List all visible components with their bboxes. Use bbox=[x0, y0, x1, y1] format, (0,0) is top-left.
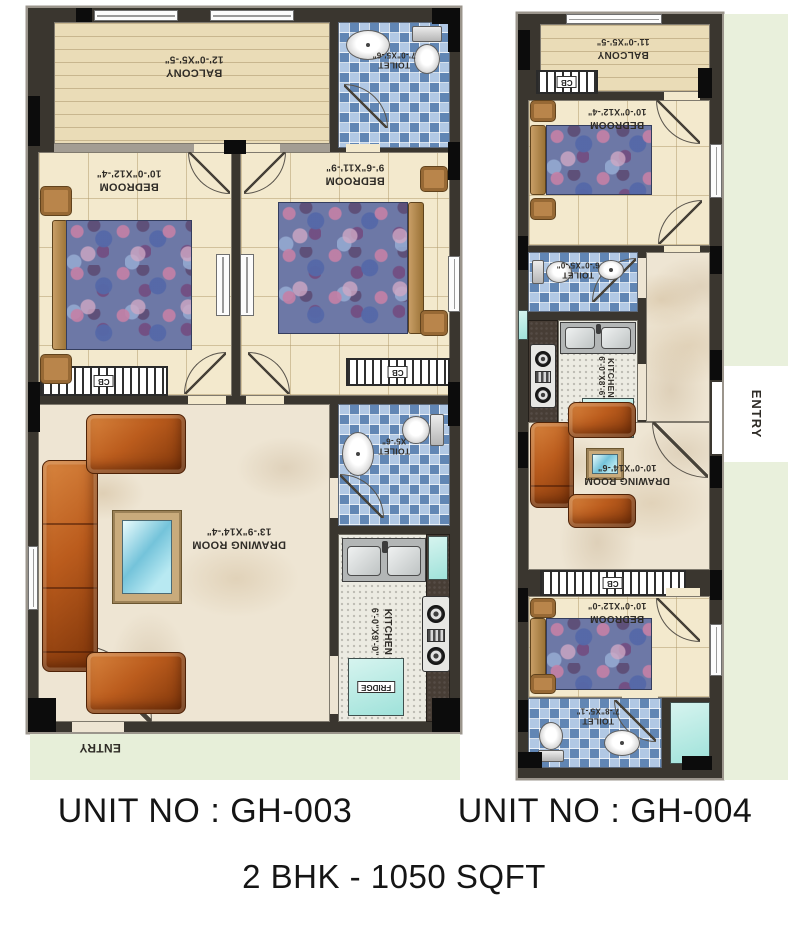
column-block bbox=[432, 698, 460, 732]
column-block bbox=[710, 570, 722, 600]
burner-icon bbox=[427, 647, 445, 665]
sofa-three-seater bbox=[42, 460, 98, 672]
room-dim: 7'-8"X5'-1" bbox=[576, 706, 619, 716]
room-dim: 7'-0"X5'-6" bbox=[372, 50, 415, 60]
sofa-single bbox=[86, 414, 186, 474]
room-dim: 11'-0"X5'-5" bbox=[597, 36, 650, 47]
column-block bbox=[518, 588, 528, 622]
column-block bbox=[224, 140, 246, 154]
door-opening bbox=[666, 588, 700, 596]
column-block bbox=[518, 700, 528, 732]
room-name: BALCONY bbox=[166, 65, 223, 79]
utility-glass-box bbox=[670, 702, 710, 764]
bed bbox=[546, 125, 652, 195]
window bbox=[518, 310, 528, 340]
sofa-single bbox=[86, 652, 186, 714]
sink-basin bbox=[565, 327, 595, 349]
bedside-table bbox=[40, 354, 72, 384]
room-name: BALCONY bbox=[597, 47, 649, 60]
room-name: KITCHEN bbox=[606, 358, 617, 398]
sofa-single bbox=[568, 402, 636, 438]
room-dim: 10'-0"X14'-6" bbox=[598, 462, 657, 473]
faucet-icon bbox=[596, 324, 601, 334]
cupboard: CB bbox=[540, 570, 686, 596]
cupboard-label: CB bbox=[94, 375, 114, 387]
burner-icon bbox=[427, 605, 445, 623]
column-block bbox=[28, 96, 40, 146]
sink-basin bbox=[347, 546, 381, 576]
room-dim: X5'-6" bbox=[382, 436, 406, 446]
burner-icon bbox=[535, 387, 551, 403]
door-panel bbox=[240, 254, 254, 316]
drawing-room-label: DRAWING ROOM 10'-0"X14'-6" bbox=[562, 462, 692, 486]
unit-number-gh003: UNIT NO : GH-003 bbox=[30, 792, 380, 831]
sink-icon bbox=[560, 322, 636, 354]
room-name: TOILET bbox=[378, 60, 410, 71]
gh004-corridor bbox=[646, 252, 710, 422]
bed bbox=[546, 618, 652, 690]
room-dim: 10'-0"X12'-0" bbox=[588, 600, 647, 611]
cupboard-label: CB bbox=[603, 577, 623, 589]
door-panel bbox=[216, 254, 230, 316]
door-opening bbox=[346, 144, 380, 152]
column-block bbox=[448, 382, 460, 426]
window bbox=[94, 10, 178, 21]
door-opening bbox=[244, 144, 280, 152]
room-name: BEDROOM bbox=[590, 611, 644, 624]
unit-number-gh004: UNIT NO : GH-004 bbox=[440, 792, 770, 831]
gh004-outside-entry-area: ENTRY bbox=[724, 14, 788, 780]
column-block bbox=[710, 456, 722, 488]
column-block bbox=[698, 68, 712, 98]
fridge-label: FRIDGE bbox=[357, 681, 395, 693]
door-opening bbox=[638, 258, 646, 298]
bedroom-label: BEDROOM 10'-0"X12'-4" bbox=[64, 166, 194, 192]
stove-icon bbox=[530, 344, 556, 408]
burner-icon bbox=[535, 351, 551, 367]
headboard bbox=[530, 125, 546, 195]
stove-icon bbox=[422, 596, 450, 672]
bedroom-label: BEDROOM 9'-6"X11'-9" bbox=[280, 160, 430, 186]
room-name: TOILET bbox=[582, 716, 614, 727]
door-opening bbox=[246, 396, 284, 404]
bedside-table bbox=[530, 198, 556, 220]
bedroom-label: BEDROOM 10'-0"X12'-0" bbox=[542, 600, 692, 624]
faucet-icon bbox=[382, 541, 388, 553]
door-opening bbox=[664, 92, 700, 100]
wc-tank bbox=[412, 26, 442, 42]
door-opening bbox=[664, 246, 700, 252]
plan-subtitle: 2 BHK - 1050 SQFT bbox=[0, 858, 788, 896]
entry-text: ENTRY bbox=[748, 390, 764, 439]
sink-basin bbox=[387, 546, 421, 576]
column-block bbox=[518, 432, 528, 468]
balcony-label: BALCONY 11'-0"X5'-5" bbox=[548, 36, 698, 60]
column-block bbox=[448, 142, 460, 180]
column-block bbox=[518, 752, 542, 768]
column-block bbox=[710, 246, 722, 274]
window bbox=[710, 144, 722, 198]
room-name: TOILET bbox=[562, 270, 594, 281]
window bbox=[566, 14, 662, 24]
toilet-label: TOILET 7'-8"X5'-1" bbox=[548, 706, 648, 727]
room-name: BEDROOM bbox=[325, 173, 385, 187]
window bbox=[448, 256, 460, 312]
floor-plan-canvas: CB CB bbox=[0, 0, 788, 940]
toilet-label: TOILET 6'-0"X5'-0" bbox=[536, 260, 620, 281]
bedroom-label: BEDROOM 10'-0"X12'-4" bbox=[542, 106, 692, 130]
cupboard-label: CB bbox=[557, 76, 577, 88]
room-dim: 12'-0"X5'-5" bbox=[165, 52, 224, 65]
floor-plan-gh004: CB CB bbox=[518, 14, 722, 778]
window bbox=[210, 10, 294, 21]
room-name: DRAWING ROOM bbox=[584, 473, 670, 486]
room-dim: 6'-0"X8'-6" bbox=[596, 356, 606, 399]
column-block bbox=[518, 30, 530, 70]
room-dim: 10'-0"X12'-4" bbox=[97, 166, 162, 179]
wall-segment bbox=[54, 144, 330, 152]
kitchen-label: KITCHEN 6'-0"X8'-6" bbox=[566, 354, 646, 402]
sofa-single bbox=[568, 494, 636, 528]
sink-icon bbox=[342, 538, 426, 582]
room-dim: 6'-0"X5'-0" bbox=[556, 260, 599, 270]
door-opening bbox=[622, 690, 658, 698]
room-name: TOILET bbox=[378, 446, 410, 457]
column-block bbox=[518, 236, 528, 270]
column-block bbox=[710, 350, 722, 380]
cupboard: CB bbox=[536, 70, 598, 94]
floor-plan-gh003: CB CB bbox=[28, 8, 460, 732]
door-opening bbox=[330, 478, 338, 518]
gh003-outside-entry-area: ENTRY bbox=[30, 734, 460, 780]
room-dim: 13'-9"X14'-4" bbox=[207, 524, 272, 537]
stove-grill bbox=[535, 371, 551, 383]
room-dim: 10'-0"X12'-4" bbox=[588, 106, 647, 117]
room-name: KITCHEN bbox=[380, 609, 393, 656]
entry-door-opening bbox=[712, 382, 722, 454]
bed bbox=[66, 220, 192, 350]
room-name: DRAWING ROOM bbox=[192, 537, 286, 551]
column-block bbox=[682, 756, 712, 770]
room-dim: 6'-0"X9'-0" bbox=[369, 608, 380, 656]
room-name: BEDROOM bbox=[590, 117, 644, 130]
cupboard: CB bbox=[346, 358, 450, 386]
column-block bbox=[432, 8, 460, 24]
entry-label: ENTRY bbox=[58, 740, 142, 755]
stove-grill bbox=[427, 629, 445, 642]
window bbox=[28, 546, 38, 610]
door-opening bbox=[330, 656, 338, 714]
toilet-label: TOILET 7'-0"X5'-6" bbox=[346, 50, 442, 71]
drawing-room-label: DRAWING ROOM 13'-9"X14'-4" bbox=[164, 524, 314, 550]
basin-icon bbox=[604, 730, 640, 756]
entry-door-opening bbox=[72, 722, 124, 732]
column-block bbox=[28, 382, 40, 432]
kitchen-label: KITCHEN 6'-0"X9'-0" bbox=[339, 597, 423, 667]
balcony-label: BALCONY 12'-0"X5'-5" bbox=[124, 52, 264, 78]
sink-basin bbox=[601, 327, 631, 349]
entry-label: ENTRY bbox=[724, 386, 788, 442]
entry-text: ENTRY bbox=[79, 740, 121, 755]
cupboard-label: CB bbox=[388, 366, 408, 378]
bedside-table bbox=[530, 674, 556, 694]
column-block bbox=[76, 8, 92, 22]
column-block bbox=[448, 24, 460, 52]
kitchen-window bbox=[428, 536, 448, 580]
gh003-balcony bbox=[54, 22, 330, 144]
bedside-table bbox=[420, 310, 448, 336]
room-dim: 9'-6"X11'-9" bbox=[326, 160, 384, 173]
bed bbox=[278, 202, 408, 334]
door-opening bbox=[188, 396, 226, 404]
room-name: BEDROOM bbox=[99, 179, 159, 193]
toilet-label: TOILET X5'-6" bbox=[348, 436, 440, 457]
window bbox=[710, 624, 722, 676]
column-block bbox=[28, 698, 56, 732]
